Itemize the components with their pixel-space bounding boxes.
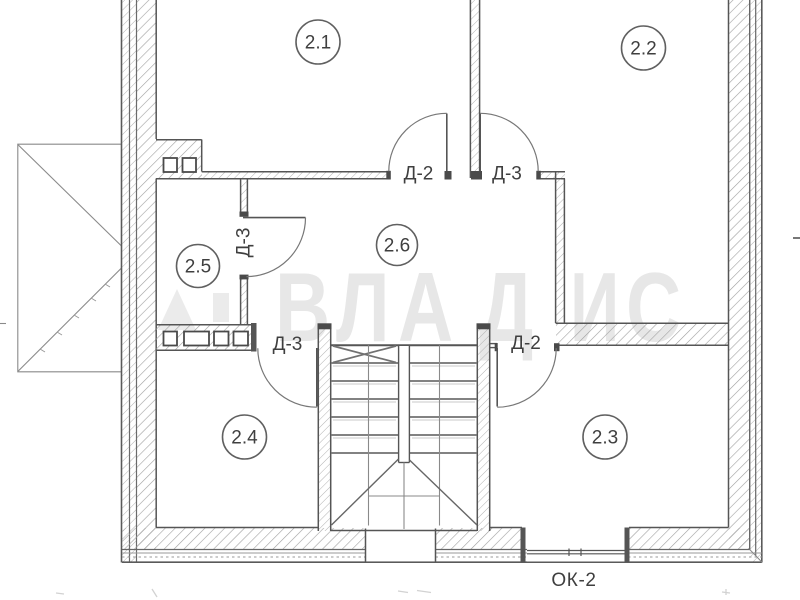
svg-text:Д-2: Д-2 bbox=[511, 333, 541, 354]
svg-text:ОК-2: ОК-2 bbox=[551, 570, 596, 591]
svg-text:Д-2: Д-2 bbox=[404, 164, 434, 185]
svg-text:2.6: 2.6 bbox=[384, 236, 410, 257]
svg-text:2.4: 2.4 bbox=[231, 428, 258, 449]
svg-text:Д-3: Д-3 bbox=[273, 334, 303, 355]
svg-text:2.3: 2.3 bbox=[592, 428, 618, 449]
svg-text:Д-3: Д-3 bbox=[234, 228, 255, 258]
svg-text:Д-3: Д-3 bbox=[492, 164, 522, 185]
svg-text:2.5: 2.5 bbox=[185, 257, 211, 278]
svg-text:2.1: 2.1 bbox=[305, 33, 331, 54]
svg-text:2.2: 2.2 bbox=[630, 39, 656, 60]
